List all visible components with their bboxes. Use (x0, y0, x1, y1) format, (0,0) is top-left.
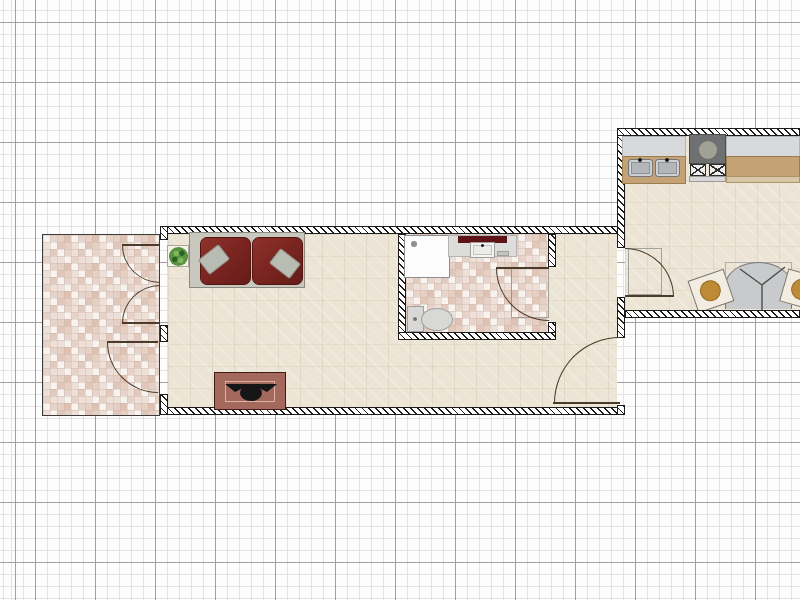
wall-living-left-a[interactable] (160, 226, 168, 240)
wall-bathroom-right-a[interactable] (548, 234, 556, 267)
burner-icon (699, 141, 717, 159)
soap-dish (497, 251, 509, 256)
kitchen-cabinet-right[interactable] (726, 156, 800, 177)
kitchen-countertop-right[interactable] (726, 136, 800, 157)
wall-kitchen-bottom[interactable] (625, 310, 800, 318)
range-drawer-right (709, 164, 726, 176)
kitchen-sink-countertop[interactable] (622, 136, 686, 157)
toilet-bowl[interactable] (421, 308, 453, 331)
wall-bathroom-bottom[interactable] (398, 332, 556, 340)
wall-right-c[interactable] (617, 405, 625, 415)
range-drawer-left (690, 164, 706, 176)
kitchen-sink-cabinet[interactable] (622, 156, 686, 184)
chair-seat (697, 277, 724, 304)
chair-seat (789, 276, 800, 302)
faucet-icon (665, 158, 669, 162)
range-cooktop[interactable] (689, 134, 726, 164)
kitchen-cabinet-front (726, 176, 800, 183)
sofa[interactable] (189, 232, 305, 288)
wall-living-left-b[interactable] (160, 325, 168, 342)
bathroom-sink-counter[interactable] (448, 235, 517, 257)
plant-foliage-icon (169, 247, 188, 266)
shower-base[interactable] (404, 235, 450, 278)
potted-plant[interactable] (167, 245, 189, 267)
wall-right-b[interactable] (617, 297, 625, 338)
faucet-icon (638, 158, 642, 162)
wall-living-left-c[interactable] (160, 394, 168, 415)
range-base (689, 176, 726, 182)
fireplace[interactable] (214, 372, 286, 410)
faucet-icon (481, 244, 484, 247)
fireplace-grate-icon (215, 373, 287, 411)
shower-drain-icon (411, 241, 417, 247)
toilet-flush-icon (413, 317, 417, 321)
plan-canvas[interactable] (0, 0, 800, 600)
